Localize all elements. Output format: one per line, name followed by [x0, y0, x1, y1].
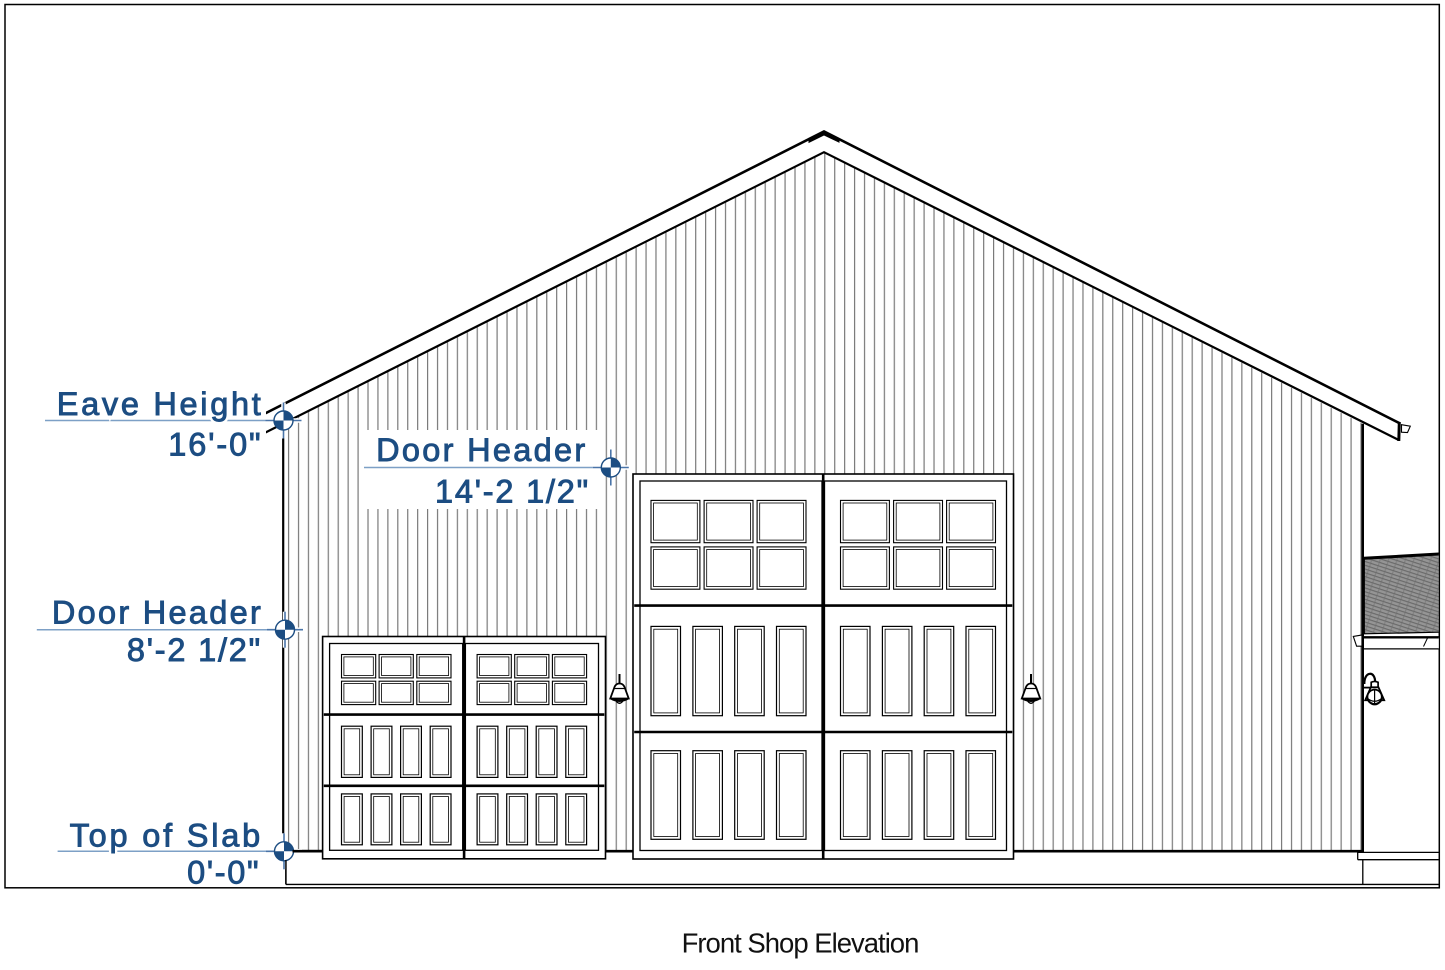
svg-text:0'-0": 0'-0"	[187, 855, 260, 891]
svg-text:Door Header: Door Header	[52, 594, 263, 630]
svg-text:8'-2 1/2": 8'-2 1/2"	[127, 632, 262, 668]
svg-text:Eave Height: Eave Height	[57, 386, 264, 422]
svg-text:14'-2 1/2": 14'-2 1/2"	[435, 474, 590, 510]
svg-text:16'-0": 16'-0"	[168, 427, 262, 463]
svg-text:Door Header: Door Header	[376, 432, 587, 468]
svg-text:Front Shop Elevation: Front Shop Elevation	[682, 928, 919, 959]
svg-text:Top of Slab: Top of Slab	[70, 818, 263, 854]
